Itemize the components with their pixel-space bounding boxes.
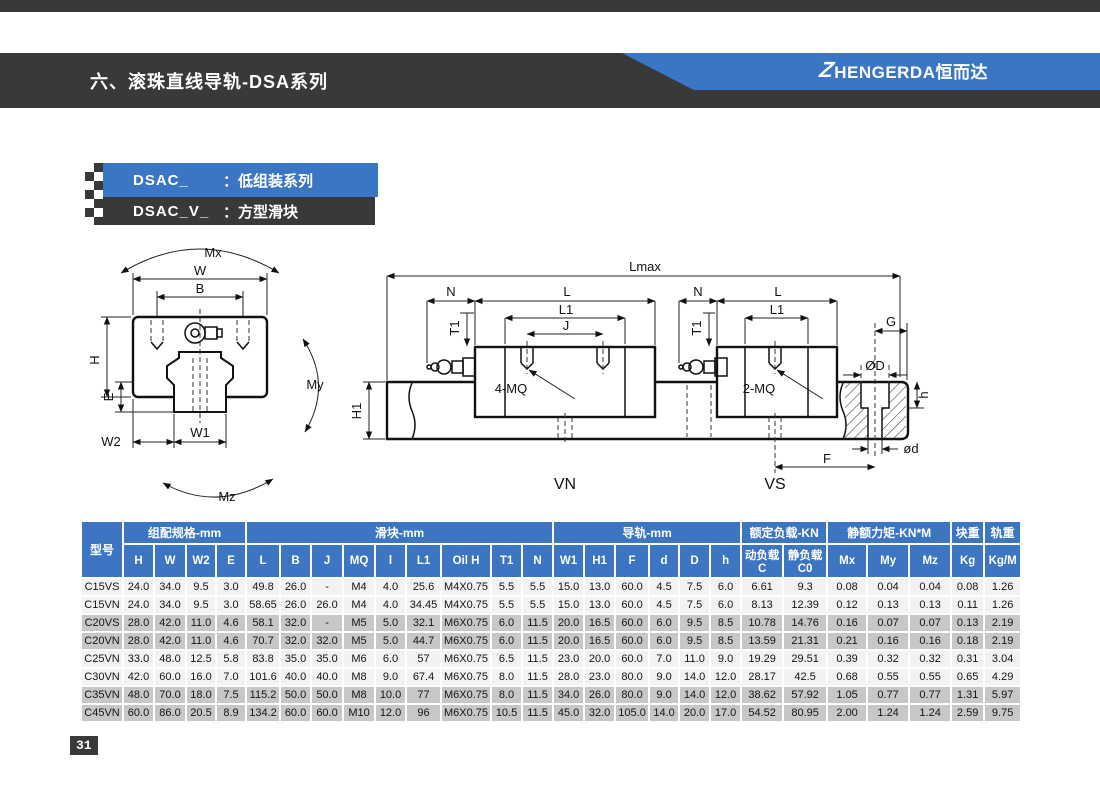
spec-table: 型号 组配规格-mm 滑块-mm 导轨-mm 额定负载-KN 静额力矩-KN*M… [80,520,1022,723]
col-header-w: W [154,544,186,578]
dim-label-n2: N [693,284,702,299]
col-header--c: 动负载C [741,544,783,578]
callout-4mq: 4-MQ [495,381,528,396]
value-cell: 0.55 [867,668,909,686]
value-cell: 57 [406,650,441,668]
value-cell: 4.5 [649,596,679,614]
value-cell: 48.0 [154,650,186,668]
value-cell: 0.68 [827,668,867,686]
top-border-strip [0,0,1100,12]
value-cell: 4.29 [984,668,1021,686]
value-cell: 34.45 [406,596,441,614]
value-cell: 96 [406,704,441,722]
col-header-l1: L1 [406,544,441,578]
value-cell: 6.0 [710,578,741,596]
value-cell: 29.51 [783,650,827,668]
series-secondary-code: DSAC_V_ [133,203,223,220]
value-cell: 23.0 [553,650,584,668]
dim-label-f: F [823,451,831,466]
value-cell: 20.0 [553,614,584,632]
dim-label-mx: Mx [204,245,222,260]
value-cell: 11.5 [522,650,553,668]
view-label-vs: VS [764,476,785,493]
value-cell: 60.0 [615,632,649,650]
value-cell: - [311,614,343,632]
view-label-vn: VN [554,476,576,493]
value-cell: 5.8 [216,650,246,668]
value-cell: 13.59 [741,632,783,650]
value-cell: 2.00 [827,704,867,722]
dim-label-l1-2: L1 [770,302,784,317]
value-cell: 0.32 [867,650,909,668]
value-cell: 32.1 [406,614,441,632]
value-cell: 24.0 [123,596,154,614]
value-cell: 58.1 [246,614,280,632]
value-cell: 35.0 [280,650,311,668]
value-cell: 11.0 [186,614,216,632]
model-cell: C15VS [81,578,123,596]
model-cell: C30VN [81,668,123,686]
series-secondary-bar: DSAC_V_ ：方型滑块 [103,197,375,225]
value-cell: 0.08 [951,578,984,596]
value-cell: 9.3 [783,578,827,596]
value-cell: 9.5 [186,596,216,614]
brand-z-icon: Z [817,57,835,83]
col-header-h: H [123,544,154,578]
value-cell: 11.0 [186,632,216,650]
dim-label-w1: W1 [190,425,210,440]
value-cell: 13.0 [584,596,615,614]
value-cell: 5.97 [984,686,1021,704]
table-row-C20VN: C20VN28.042.011.04.670.732.032.0M55.044.… [81,632,1021,650]
group-header-rail-weight: 轨重 [984,521,1021,544]
table-row-C15VS: C15VS24.034.09.53.049.826.0-M44.025.6M4X… [81,578,1021,596]
cross-section-view: Mx W B H [87,245,324,504]
table-row-C45VN: C45VN60.086.020.58.9134.260.060.0M1012.0… [81,704,1021,722]
dim-label-lmax: Lmax [629,259,661,274]
value-cell: 6.0 [649,614,679,632]
value-cell: 10.0 [375,686,406,704]
value-cell: 0.13 [909,596,951,614]
value-cell: 35.0 [311,650,343,668]
table-group-row: 型号 组配规格-mm 滑块-mm 导轨-mm 额定负载-KN 静额力矩-KN*M… [81,521,1021,544]
value-cell: 16.5 [584,632,615,650]
technical-drawing: Mx W B H [75,227,995,512]
table-row-C30VN: C30VN42.060.016.07.0101.640.040.0M89.067… [81,668,1021,686]
dim-label-w2: W2 [101,434,121,449]
value-cell: 7.5 [679,596,710,614]
value-cell: 101.6 [246,668,280,686]
dim-label-hole-h: h [916,391,931,398]
value-cell: 67.4 [406,668,441,686]
value-cell: 5.0 [375,614,406,632]
group-header-moment: 静额力矩-KN*M [827,521,951,544]
col-header-model: 型号 [81,521,123,578]
value-cell: 5.5 [491,578,522,596]
value-cell: 9.75 [984,704,1021,722]
value-cell: 42.0 [123,668,154,686]
checker-decoration [85,163,103,225]
value-cell: 6.0 [491,614,522,632]
value-cell: 6.0 [375,650,406,668]
value-cell: 5.5 [522,578,553,596]
value-cell: 4.5 [649,578,679,596]
value-cell: 48.0 [123,686,154,704]
value-cell: 26.0 [280,578,311,596]
value-cell: M6X0.75 [441,686,491,704]
value-cell: 20.0 [679,704,710,722]
col-header-l: l [375,544,406,578]
col-header-b: B [280,544,311,578]
value-cell: 13.0 [584,578,615,596]
value-cell: 16.0 [186,668,216,686]
value-cell: 0.07 [867,614,909,632]
value-cell: 15.0 [553,596,584,614]
value-cell: 12.5 [186,650,216,668]
value-cell: 80.0 [615,668,649,686]
col-header-kg-m: Kg/M [984,544,1021,578]
value-cell: 17.0 [710,704,741,722]
value-cell: 60.0 [123,704,154,722]
value-cell: 3.0 [216,596,246,614]
value-cell: 14.0 [679,686,710,704]
value-cell: 3.04 [984,650,1021,668]
value-cell: 12.0 [710,668,741,686]
value-cell: 12.39 [783,596,827,614]
dim-label-g: G [886,314,896,329]
brand-logo: Z HENGERDA恒而达 [820,57,988,83]
value-cell: 1.26 [984,596,1021,614]
value-cell: 45.0 [553,704,584,722]
value-cell: 28.0 [123,614,154,632]
value-cell: 0.08 [827,578,867,596]
value-cell: 83.8 [246,650,280,668]
value-cell: 60.0 [615,650,649,668]
value-cell: 70.0 [154,686,186,704]
value-cell: M10 [343,704,375,722]
dim-label-h1: H1 [349,403,364,420]
brand-logo-text: HENGERDA恒而达 [834,58,988,83]
value-cell: 0.32 [909,650,951,668]
value-cell: 58.65 [246,596,280,614]
value-cell: 1.05 [827,686,867,704]
value-cell: M6X0.75 [441,632,491,650]
value-cell: 7.0 [649,650,679,668]
value-cell: 28.0 [123,632,154,650]
col-header-mq: MQ [343,544,375,578]
value-cell: 4.0 [375,596,406,614]
series-primary-code: DSAC_ [133,172,223,189]
value-cell: 0.77 [867,686,909,704]
value-cell: 60.0 [154,668,186,686]
value-cell: - [311,578,343,596]
value-cell: M4X0.75 [441,578,491,596]
value-cell: 33.0 [123,650,154,668]
value-cell: 28.17 [741,668,783,686]
value-cell: 6.0 [491,632,522,650]
value-cell: 20.5 [186,704,216,722]
value-cell: 10.78 [741,614,783,632]
value-cell: 7.5 [216,686,246,704]
value-cell: M4 [343,596,375,614]
value-cell: 32.0 [280,632,311,650]
col-header-oil-h: Oil H [441,544,491,578]
value-cell: 5.0 [375,632,406,650]
value-cell: 9.0 [649,686,679,704]
value-cell: 105.0 [615,704,649,722]
col-header-h1: H1 [584,544,615,578]
value-cell: 21.31 [783,632,827,650]
col-header--c0: 静负载C0 [783,544,827,578]
value-cell: 6.61 [741,578,783,596]
value-cell: 9.5 [679,632,710,650]
col-header-n: N [522,544,553,578]
col-header-d: D [679,544,710,578]
col-header-f: F [615,544,649,578]
value-cell: 0.07 [909,614,951,632]
value-cell: 18.0 [186,686,216,704]
dim-label-phid: ød [903,441,918,456]
value-cell: 0.04 [867,578,909,596]
table-subheader-row: HWW2ELBJMQlL1Oil HT1NW1H1FdDh动负载C静负载C0Mx… [81,544,1021,578]
value-cell: 0.11 [951,596,984,614]
col-header-w2: W2 [186,544,216,578]
value-cell: 0.13 [951,614,984,632]
group-header-load: 额定负载-KN [741,521,827,544]
value-cell: 8.5 [710,614,741,632]
callout-2mq: 2-MQ [743,381,776,396]
value-cell: 40.0 [311,668,343,686]
dim-label-my: My [306,377,324,392]
value-cell: 34.0 [154,578,186,596]
value-cell: 26.0 [280,596,311,614]
value-cell: 50.0 [311,686,343,704]
group-header-rail: 导轨-mm [553,521,741,544]
value-cell: 0.21 [827,632,867,650]
page-number-badge: 31 [70,736,98,755]
value-cell: 16.5 [584,614,615,632]
value-cell: 9.0 [649,668,679,686]
value-cell: 0.31 [951,650,984,668]
table-row-C15VN: C15VN24.034.09.53.058.6526.026.0M44.034.… [81,596,1021,614]
value-cell: 1.31 [951,686,984,704]
value-cell: 8.5 [710,632,741,650]
value-cell: 32.0 [311,632,343,650]
value-cell: 60.0 [311,704,343,722]
series-bars: DSAC_ ：低组装系列 DSAC_V_ ：方型滑块 [103,163,378,225]
value-cell: 1.26 [984,578,1021,596]
value-cell: 11.5 [522,632,553,650]
value-cell: 77 [406,686,441,704]
value-cell: 14.76 [783,614,827,632]
value-cell: 32.0 [280,614,311,632]
value-cell: 0.16 [867,632,909,650]
side-view: Lmax H1 [349,259,931,493]
value-cell: 60.0 [615,578,649,596]
value-cell: 11.5 [522,686,553,704]
value-cell: 50.0 [280,686,311,704]
col-header-kg: Kg [951,544,984,578]
value-cell: 38.62 [741,686,783,704]
value-cell: M8 [343,668,375,686]
catalog-page: 六、滚珠直线导轨-DSA系列 Z HENGERDA恒而达 DSAC_ ：低组装系… [0,0,1100,802]
value-cell: 23.0 [584,668,615,686]
value-cell: 8.13 [741,596,783,614]
table-body: C15VS24.034.09.53.049.826.0-M44.025.6M4X… [81,578,1021,722]
col-header-t1: T1 [491,544,522,578]
value-cell: 11.0 [679,650,710,668]
dim-label-l2: L [774,284,781,299]
value-cell: M6X0.75 [441,650,491,668]
value-cell: 8.0 [491,668,522,686]
value-cell: 6.0 [649,632,679,650]
value-cell: 20.0 [553,632,584,650]
value-cell: 12.0 [710,686,741,704]
value-cell: 8.9 [216,704,246,722]
value-cell: 3.0 [216,578,246,596]
col-header-d: d [649,544,679,578]
value-cell: M6X0.75 [441,704,491,722]
table-row-C35VN: C35VN48.070.018.07.5115.250.050.0M810.07… [81,686,1021,704]
col-header-e: E [216,544,246,578]
dim-label-j: J [563,318,570,333]
value-cell: M6X0.75 [441,614,491,632]
model-cell: C25VN [81,650,123,668]
value-cell: 42.0 [154,632,186,650]
value-cell: 0.04 [909,578,951,596]
col-header-l: L [246,544,280,578]
col-header-mx: Mx [827,544,867,578]
dim-label-t1: T1 [447,320,462,335]
value-cell: 60.0 [615,596,649,614]
value-cell: 1.24 [867,704,909,722]
value-cell: 40.0 [280,668,311,686]
value-cell: 34.0 [553,686,584,704]
page-title: 六、滚珠直线导轨-DSA系列 [90,68,328,94]
series-label-block: DSAC_ ：低组装系列 DSAC_V_ ：方型滑块 [85,163,378,225]
value-cell: 0.16 [827,614,867,632]
value-cell: 57.92 [783,686,827,704]
dim-label-n: N [446,284,455,299]
model-cell: C45VN [81,704,123,722]
group-header-block: 滑块-mm [246,521,553,544]
value-cell: 24.0 [123,578,154,596]
value-cell: 9.0 [710,650,741,668]
col-header-mz: Mz [909,544,951,578]
header-band: 六、滚珠直线导轨-DSA系列 Z HENGERDA恒而达 [0,53,1100,108]
value-cell: M4X0.75 [441,596,491,614]
col-header-h: h [710,544,741,578]
value-cell: 11.5 [522,614,553,632]
value-cell: 4.0 [375,578,406,596]
value-cell: 44.7 [406,632,441,650]
col-header-j: J [311,544,343,578]
value-cell: 10.5 [491,704,522,722]
value-cell: 0.16 [909,632,951,650]
dim-label-l: L [563,284,570,299]
value-cell: M8 [343,686,375,704]
value-cell: 54.52 [741,704,783,722]
value-cell: 32.0 [584,704,615,722]
col-header-my: My [867,544,909,578]
dim-label-l1: L1 [559,302,573,317]
value-cell: 14.0 [649,704,679,722]
value-cell: 80.95 [783,704,827,722]
value-cell: 5.5 [522,596,553,614]
group-header-assembly: 组配规格-mm [123,521,246,544]
value-cell: 28.0 [553,668,584,686]
value-cell: 34.0 [154,596,186,614]
value-cell: 9.5 [186,578,216,596]
model-cell: C20VS [81,614,123,632]
value-cell: 5.5 [491,596,522,614]
value-cell: 70.7 [246,632,280,650]
value-cell: 2.59 [951,704,984,722]
value-cell: 0.55 [909,668,951,686]
value-cell: 9.0 [375,668,406,686]
col-header-w1: W1 [553,544,584,578]
value-cell: 42.0 [154,614,186,632]
dim-label-b: B [196,281,205,296]
value-cell: 20.0 [584,650,615,668]
value-cell: M4 [343,578,375,596]
value-cell: 1.24 [909,704,951,722]
value-cell: 4.6 [216,632,246,650]
series-primary-desc: ：低组装系列 [223,170,313,191]
value-cell: 4.6 [216,614,246,632]
dim-label-mz: Mz [218,489,235,504]
dim-label-h: H [87,355,102,364]
model-cell: C35VN [81,686,123,704]
value-cell: M5 [343,632,375,650]
value-cell: 6.0 [710,596,741,614]
value-cell: 6.5 [491,650,522,668]
value-cell: 7.5 [679,578,710,596]
value-cell: M6X0.75 [441,668,491,686]
dim-label-e: E [101,392,116,401]
value-cell: 25.6 [406,578,441,596]
series-primary-bar: DSAC_ ：低组装系列 [103,163,378,197]
value-cell: 0.13 [867,596,909,614]
dim-label-t1-2: T1 [689,320,704,335]
value-cell: 115.2 [246,686,280,704]
value-cell: 60.0 [280,704,311,722]
value-cell: 14.0 [679,668,710,686]
value-cell: 2.19 [984,614,1021,632]
value-cell: 42.5 [783,668,827,686]
value-cell: M5 [343,614,375,632]
value-cell: 19.29 [741,650,783,668]
value-cell: 134.2 [246,704,280,722]
value-cell: 7.0 [216,668,246,686]
value-cell: 8.0 [491,686,522,704]
value-cell: 26.0 [584,686,615,704]
value-cell: 0.65 [951,668,984,686]
value-cell: 12.0 [375,704,406,722]
value-cell: 86.0 [154,704,186,722]
table-row-C25VN: C25VN33.048.012.55.883.835.035.0M66.057M… [81,650,1021,668]
group-header-block-weight: 块重 [951,521,984,544]
value-cell: M6 [343,650,375,668]
value-cell: 60.0 [615,614,649,632]
value-cell: 15.0 [553,578,584,596]
value-cell: 80.0 [615,686,649,704]
value-cell: 2.19 [984,632,1021,650]
value-cell: 0.12 [827,596,867,614]
value-cell: 9.5 [679,614,710,632]
value-cell: 11.5 [522,704,553,722]
dim-label-phiD: ØD [865,358,885,373]
